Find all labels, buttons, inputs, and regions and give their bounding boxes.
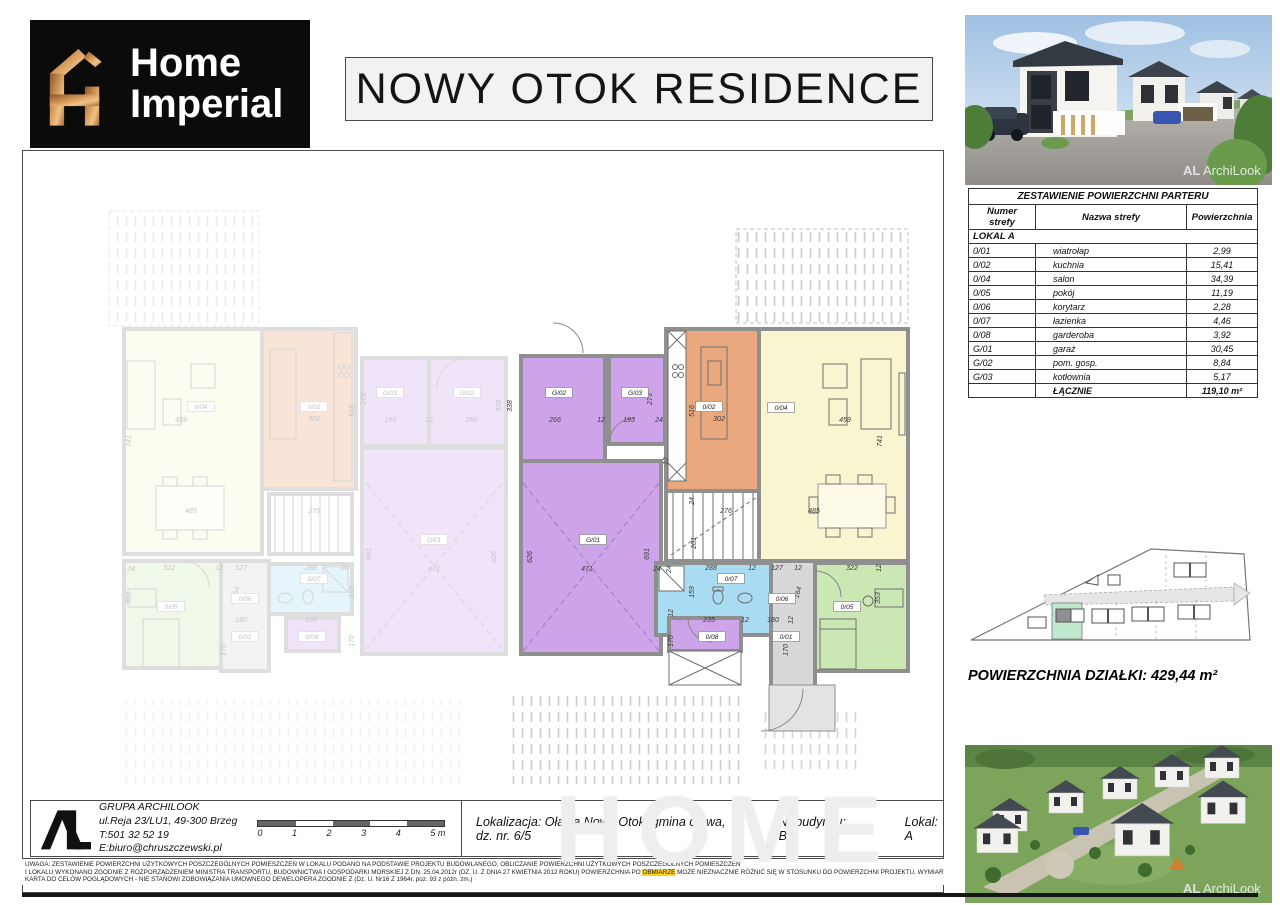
room-label: 0/01 [232, 632, 259, 642]
highlighted-word: OBMIARZE [642, 869, 675, 876]
room-label: G/02 [546, 388, 573, 398]
dimension-text: 170 [783, 644, 790, 656]
table-row: G/02pom. gosp.8,84 [969, 356, 1258, 370]
dimension-text: 24 [340, 565, 349, 572]
dimension-text: 626 [527, 551, 534, 563]
company-name: GRUPA ARCHILOOK [99, 801, 237, 815]
home-imperial-house-icon [42, 38, 120, 130]
svg-text:G/01: G/01 [586, 537, 600, 544]
dimension-text: 127 [771, 565, 784, 572]
dimension-text: 193 [623, 417, 635, 424]
plot-area-label: POWIERZCHNIA DZIAŁKI: 429,44 m² [968, 668, 1217, 684]
brand-name: Home Imperial [130, 43, 283, 125]
dimension-text: 266 [464, 417, 477, 424]
room-label: G/03 [377, 388, 404, 398]
svg-text:0/01: 0/01 [780, 634, 793, 641]
dimension-text: 485 [185, 508, 197, 515]
table-row: 0/02kuchnia15,41 [969, 258, 1258, 272]
dimension-text: 12 [788, 616, 795, 624]
room [521, 461, 661, 654]
room-label: G/03 [622, 388, 649, 398]
dimension-text: 338 [507, 400, 514, 412]
table-row: G/01garaż30,45 [969, 342, 1258, 356]
table-title: ZESTAWIENIE POWIERZCHNI PARTERU [969, 189, 1258, 205]
driveway-hatch [121, 699, 461, 784]
svg-text:G/03: G/03 [383, 390, 397, 397]
dimension-text: 471 [581, 566, 593, 573]
dimension-text: 127 [235, 565, 248, 572]
dimension-text: 24 [666, 565, 673, 574]
dimension-text: 741 [877, 435, 884, 447]
svg-text:0/05: 0/05 [841, 604, 854, 611]
dimension-text: 193 [384, 417, 396, 424]
dimension-text: 24 [652, 566, 661, 573]
svg-text:ArchiLook: ArchiLook [1203, 163, 1261, 178]
table-row: 0/06korytarz2,28 [969, 300, 1258, 314]
unit-right-plan: 3382661219324273125163024597412427648520… [506, 229, 908, 784]
dimension-text: 322 [846, 565, 858, 572]
room-label: 0/04 [188, 402, 215, 412]
group-label: LOKAL A [969, 230, 1258, 244]
entrance-porch [769, 685, 835, 731]
disclaimer: UWAGA: ZESTAWIENIE POWIERZCHNI UŻYTKOWYC… [22, 858, 944, 885]
room-label: G/01 [421, 535, 448, 545]
table-row: LOKAL A [969, 230, 1258, 244]
svg-text:0/01: 0/01 [239, 634, 252, 641]
disclaimer-line3: KARTA DO CELÓW POGLĄDOWYCH - NIE STANOWI… [25, 876, 941, 884]
dimension-text: 691 [644, 548, 651, 560]
total-value: 119,10 m² [1187, 384, 1258, 398]
dimension-text: 626 [491, 551, 498, 563]
scale-bar: 012345 m [257, 820, 445, 838]
dimension-text: 302 [713, 416, 725, 423]
plaza-circle [1046, 851, 1074, 879]
svg-text:0/08: 0/08 [306, 634, 319, 641]
dimension-text: 170 [349, 635, 356, 647]
dimension-text: 691 [366, 548, 373, 560]
room [521, 356, 605, 461]
table-row: Numer strefyNazwa strefyPowierzchnia [969, 205, 1258, 230]
column-header: Nazwa strefy [1036, 205, 1187, 230]
total-label: ŁĄCZNIE [1036, 384, 1187, 398]
svg-text:G/02: G/02 [460, 390, 474, 397]
dimension-text: 12 [668, 609, 675, 617]
dimension-text: 180 [767, 617, 779, 624]
company-phone: T:501 32 52 19 [99, 829, 237, 843]
room [221, 561, 269, 671]
svg-text:G/01: G/01 [427, 537, 441, 544]
svg-text:0/02: 0/02 [703, 404, 716, 411]
drawing-frame: 4593025167411931226627333848527647169162… [22, 150, 944, 893]
svg-text:0/04: 0/04 [195, 404, 208, 411]
site-plan [966, 543, 1262, 665]
dimension-text: 353 [875, 592, 882, 604]
unit-left-plan: 4593025167411931226627333848527647169162… [109, 211, 506, 784]
dimension-text: 273 [361, 393, 368, 406]
dimension-text: 235 [304, 617, 317, 624]
floor-plan-canvas: 4593025167411931226627333848527647169162… [23, 151, 945, 894]
room-label: 0/07 [718, 574, 745, 584]
table-row: 0/08garderoba3,92 [969, 328, 1258, 342]
svg-text:G/03: G/03 [628, 390, 642, 397]
unit-label: Lokal: A [905, 815, 943, 843]
room-label: 0/02 [301, 402, 328, 412]
project-title-text: NOWY OTOK RESIDENCE [356, 65, 923, 114]
dimension-text: 12 [425, 417, 433, 424]
room-label: G/01 [580, 535, 607, 545]
dimension-text: 159 [349, 586, 356, 598]
dimension-text: 24 [654, 417, 663, 424]
room [609, 356, 665, 444]
dimension-text: 235 [702, 617, 715, 624]
column-header: Powierzchnia [1187, 205, 1258, 230]
room-label: 0/05 [158, 602, 185, 612]
scale-tick-label: 2 [327, 828, 332, 838]
table-row: 0/01wiatrołap2,99 [969, 244, 1258, 258]
dimension-text: 288 [304, 565, 317, 572]
room-label: 0/06 [769, 594, 796, 604]
room-label: 0/08 [699, 632, 726, 642]
bottom-rule [22, 893, 1258, 897]
dimension-text: 471 [428, 566, 440, 573]
room-label: 0/06 [232, 594, 259, 604]
location-block: Lokalizacja: Oława Nowy Otok, gmina oław… [462, 801, 943, 856]
street-render: AL ArchiLook [965, 15, 1272, 185]
table-row: 0/04salon34,39 [969, 272, 1258, 286]
dimension-text: 266 [548, 417, 561, 424]
aerial-render: AL ArchiLook [965, 745, 1272, 903]
table-row: ŁĄCZNIE119,10 m² [969, 384, 1258, 398]
room [362, 358, 429, 446]
archilook-watermark: AL [1183, 163, 1200, 178]
room-label: 0/02 [696, 402, 723, 412]
company-block: GRUPA ARCHILOOK ul.Reja 23/LU1, 49-300 B… [31, 801, 462, 856]
svg-text:0/08: 0/08 [706, 634, 719, 641]
company-email: E:biuro@chruszczewski.pl [99, 842, 237, 856]
dimension-text: 288 [704, 565, 717, 572]
svg-text:0/02: 0/02 [308, 404, 321, 411]
svg-text:G/02: G/02 [552, 390, 566, 397]
table-row: 0/05pokój11,19 [969, 286, 1258, 300]
driveway-hatch [506, 696, 744, 784]
room-label: 0/01 [773, 632, 800, 642]
scale-tick-label: 4 [396, 828, 401, 838]
svg-text:0/06: 0/06 [776, 596, 789, 603]
dimension-text: 459 [175, 417, 187, 424]
room-label: 0/04 [768, 403, 795, 413]
dimension-text: 459 [839, 417, 851, 424]
room [124, 561, 221, 668]
project-title: NOWY OTOK RESIDENCE [345, 57, 933, 121]
title-block: GRUPA ARCHILOOK ul.Reja 23/LU1, 49-300 B… [30, 800, 944, 857]
table-row: G/03kotłownia5,17 [969, 370, 1258, 384]
dimension-text: 170 [221, 644, 228, 656]
kitchen-counter [668, 331, 686, 481]
dimension-text: 12 [597, 417, 605, 424]
dimension-text: 516 [689, 405, 696, 417]
dimension-text: 741 [126, 435, 133, 447]
company-address: ul.Reja 23/LU1, 49-300 Brzeg [99, 815, 237, 829]
dimension-text: 322 [163, 565, 175, 572]
dimension-text: 12 [748, 565, 756, 572]
dimension-text: 353 [126, 592, 133, 604]
room [362, 448, 506, 654]
building-number: Nr budynku: B3 [779, 815, 853, 843]
dimension-text: 24 [126, 566, 135, 573]
room-label: 0/08 [299, 632, 326, 642]
disclaimer-line1: UWAGA: ZESTAWIENIE POWIERZCHNI UŻYTKOWYC… [25, 861, 941, 869]
svg-text:0/07: 0/07 [308, 576, 321, 583]
car-blue [1073, 827, 1089, 835]
door-arc [553, 323, 583, 353]
terrace-hatch [736, 229, 908, 323]
dimension-text: 170 [668, 635, 675, 647]
dimension-text: 302 [308, 416, 320, 423]
room-label: G/02 [454, 388, 481, 398]
dimension-text: 12 [794, 565, 802, 572]
dimension-text: 12 [876, 564, 883, 572]
svg-text:0/07: 0/07 [725, 576, 738, 583]
dimension-text: 159 [689, 586, 696, 598]
dining-table [818, 484, 886, 528]
table-row: ZESTAWIENIE POWIERZCHNI PARTERU [969, 189, 1258, 205]
column-header: Numer strefy [969, 205, 1036, 230]
dimension-text: 24 [689, 497, 696, 506]
room-label: 0/05 [834, 602, 861, 612]
svg-text:0/05: 0/05 [165, 604, 178, 611]
room-label: 0/07 [301, 574, 328, 584]
room [815, 563, 908, 671]
dimension-text: 180 [235, 617, 247, 624]
scale-tick-label: 5 m [430, 828, 445, 838]
brand-logo: Home Imperial [30, 20, 310, 148]
dimension-text: 338 [496, 400, 503, 412]
house-main [1013, 41, 1125, 137]
scale-tick-label: 3 [361, 828, 366, 838]
dimension-text: 276 [307, 508, 320, 515]
dimension-text: 276 [719, 508, 732, 515]
room [429, 358, 506, 446]
car-blue [1153, 111, 1181, 124]
dimension-text: 12 [215, 565, 223, 572]
terrace-hatch [109, 211, 259, 326]
area-summary-table: ZESTAWIENIE POWIERZCHNI PARTERUNumer str… [968, 188, 1258, 398]
archilook-logo [39, 806, 91, 852]
dimension-text: 516 [349, 405, 356, 417]
svg-text:0/06: 0/06 [239, 596, 252, 603]
dimension-text: 12 [741, 617, 749, 624]
scale-tick-label: 1 [292, 828, 297, 838]
dimension-text: 485 [808, 508, 820, 515]
svg-text:0/04: 0/04 [775, 405, 788, 412]
scale-tick-label: 0 [257, 828, 262, 838]
dimension-text: 201 [691, 537, 698, 550]
table-row: 0/07łazienka4,46 [969, 314, 1258, 328]
location-text: Lokalizacja: Oława Nowy Otok, gmina oław… [476, 815, 741, 843]
dimension-text: 12 [663, 457, 670, 465]
